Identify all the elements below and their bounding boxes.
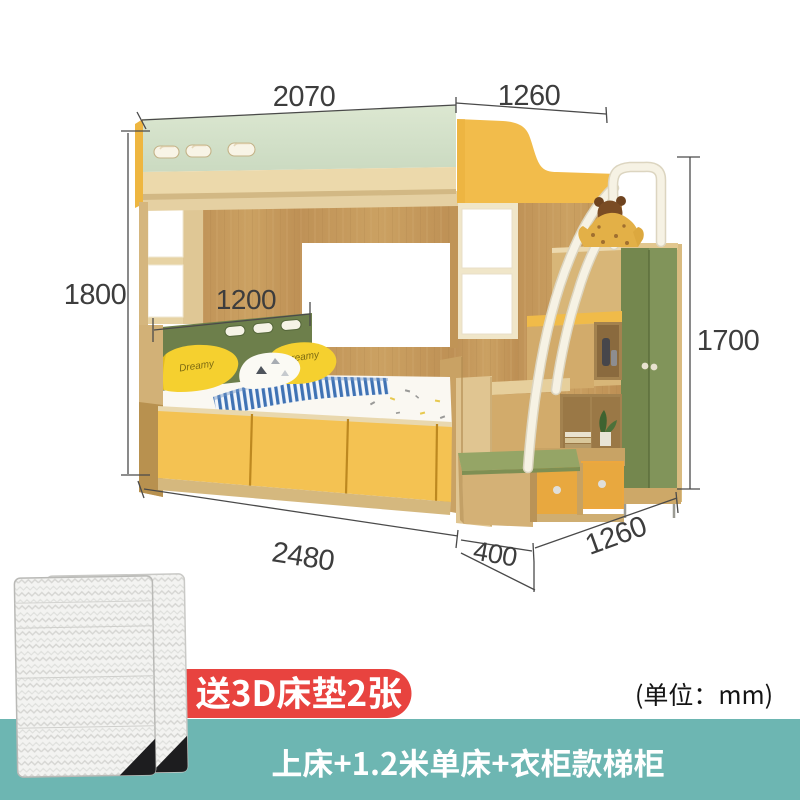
svg-text:2480: 2480 [270,536,337,577]
svg-text:1260: 1260 [498,80,561,112]
svg-text:2070: 2070 [273,81,336,113]
svg-text:1200: 1200 [216,284,276,315]
svg-text:1800: 1800 [64,279,127,311]
svg-text:1700: 1700 [697,325,760,357]
svg-text:400: 400 [471,535,519,572]
